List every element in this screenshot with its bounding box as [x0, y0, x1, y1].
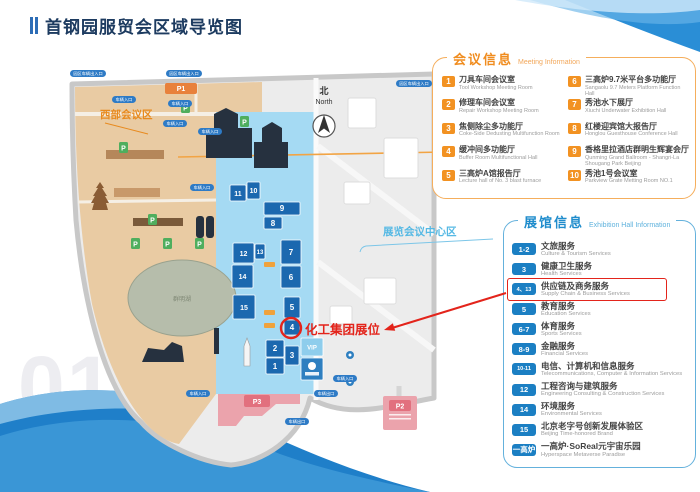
- exhibition-item-name-en: Sports Services: [541, 331, 582, 337]
- meeting-item: 7秀池水下展厅Xiuchi Underwater Exhibition Hall: [568, 98, 689, 121]
- svg-text:4: 4: [290, 323, 295, 332]
- svg-text:15: 15: [240, 305, 248, 312]
- exhibition-item: 12工程咨询与建筑服务Engineering Consulting & Cons…: [510, 380, 691, 399]
- meeting-item-number-badge: 5: [442, 170, 455, 181]
- meeting-item-name-en: Buffer Room Multifunctional Hall: [459, 155, 537, 161]
- building: [133, 218, 183, 226]
- meeting-item: 10秀池1号会议室Parkview Grate Metting Room NO.…: [568, 169, 689, 192]
- exhibition-item-name-zh: 健康卫生服务: [541, 261, 592, 271]
- meeting-item-number-badge: 1: [442, 76, 455, 87]
- exhibition-item-name-zh: 文旅服务: [541, 241, 611, 251]
- svg-text:展览会议中心区: 展览会议中心区: [383, 225, 457, 238]
- meeting-panel-title: 会议信息: [453, 49, 513, 68]
- exhibition-item-name-zh: 供应链及商务服务: [541, 281, 630, 291]
- meeting-item-name-zh: 焦侧除尘多功能厅: [459, 122, 560, 132]
- exhibition-item-number-badge: 1-2: [512, 243, 536, 255]
- svg-text:8: 8: [271, 219, 276, 228]
- exhibition-panel-title: 展馆信息: [524, 212, 584, 231]
- meeting-item: 8红楼迎宾馆大报告厅Honglou Guesthouse Conference …: [568, 122, 689, 145]
- meeting-info-panel: 会议信息 Meeting Information 1刀具车间会议室Tool Wo…: [432, 57, 696, 199]
- bank-building-sign: [305, 372, 319, 376]
- meeting-item-text: 修理车间会议室Repair Workshop Meeting Room: [459, 98, 539, 114]
- meeting-item-text: 香格里拉酒店群明生辉宴会厅Qunming Grand Ballroom - Sh…: [585, 145, 689, 167]
- meeting-item-number-badge: 2: [442, 99, 455, 110]
- meeting-panel-title-row: 会议信息 Meeting Information: [447, 49, 586, 68]
- meeting-item-name-zh: 三高炉9.7米平台多功能厅: [585, 75, 689, 85]
- exhibition-item-text: 教育服务Education Services: [541, 301, 591, 318]
- svg-text:12: 12: [240, 251, 248, 258]
- svg-text:1: 1: [273, 362, 278, 371]
- meeting-item: 4缓冲间多功能厅Buffer Room Multifunctional Hall: [442, 145, 563, 168]
- meeting-item-text: 缓冲间多功能厅Buffer Room Multifunctional Hall: [459, 145, 537, 161]
- svg-text:14: 14: [239, 274, 247, 281]
- exhibition-item-name-en: Hyperspace Metaverse Paradise: [541, 452, 641, 458]
- meeting-item-text: 焦侧除尘多功能厅Coke-Side Dedusting Multifunctio…: [459, 122, 560, 138]
- exhibition-panel-title-row: 展馆信息 Exhibition Hall Information: [518, 212, 676, 231]
- svg-text:VIP: VIP: [307, 346, 317, 352]
- exhibition-item-text: 供应链及商务服务Supply Chain & Business Services: [541, 281, 630, 298]
- svg-text:5: 5: [290, 303, 295, 312]
- exhibition-item-name-zh: 教育服务: [541, 301, 591, 311]
- svg-text:车辆入口: 车辆入口: [167, 120, 184, 127]
- meeting-item-name-en: Coke-Side Dedusting Multifunction Room: [459, 131, 560, 137]
- svg-text:车辆入口: 车辆入口: [190, 390, 207, 397]
- exhibition-item-number-badge: 一高炉: [512, 444, 536, 456]
- cooling-tower-icon: [206, 216, 214, 238]
- exhibition-item-number-badge: 12: [512, 384, 536, 396]
- exhibition-item-text: 电信、计算机和信息服务Telecommunications, Computer …: [541, 361, 682, 378]
- svg-text:车辆入口: 车辆入口: [172, 100, 189, 107]
- meeting-item-name-en: Qunming Grand Ballroom - Shangri-La Shou…: [585, 155, 689, 168]
- meeting-item-name-zh: 秀池1号会议室: [585, 169, 673, 179]
- title-bars-decoration: [30, 17, 38, 34]
- meeting-item-name-en: Sangaolu 9.7 Meters Platform Function Ha…: [585, 85, 689, 98]
- svg-text:6: 6: [289, 273, 294, 282]
- svg-text:9: 9: [280, 204, 285, 213]
- exhibition-item-name-zh: 北京老字号创新发展体验区: [541, 421, 643, 431]
- exhibition-item: 1-2文旅服务Culture & Tourism Services: [510, 240, 691, 259]
- meeting-panel-subtitle: Meeting Information: [518, 59, 580, 66]
- exhibition-item-text: 体育服务Sports Services: [541, 321, 582, 338]
- meeting-item: 9香格里拉酒店群明生辉宴会厅Qunming Grand Ballroom - S…: [568, 145, 689, 168]
- booth-annotation-label: 化工集团展位: [305, 322, 381, 337]
- svg-text:P: P: [121, 146, 126, 153]
- svg-text:车辆入口: 车辆入口: [337, 375, 354, 382]
- exhibition-item-number-badge: 4、13: [512, 283, 536, 295]
- svg-text:园区车辆出入口: 园区车辆出入口: [73, 70, 102, 77]
- exhibition-item-text: 工程咨询与建筑服务Engineering Consulting & Constr…: [541, 381, 664, 398]
- exhibition-item: 10-11电信、计算机和信息服务Telecommunications, Comp…: [510, 360, 691, 379]
- meeting-item-number-badge: 4: [442, 146, 455, 157]
- svg-text:车辆入口: 车辆入口: [202, 128, 219, 135]
- exhibition-item-text: 一高炉·SoReal元宇宙乐园Hyperspace Metaverse Para…: [541, 441, 641, 458]
- meeting-item-text: 红楼迎宾馆大报告厅Honglou Guesthouse Conference H…: [585, 122, 678, 138]
- svg-text:P: P: [165, 242, 170, 249]
- exhibition-item-list: 1-2文旅服务Culture & Tourism Services3健康卫生服务…: [510, 240, 691, 459]
- compass-zh: 北: [319, 85, 328, 96]
- exhibition-item-text: 金融服务Financial Services: [541, 341, 588, 358]
- svg-text:园区车辆出入口: 园区车辆出入口: [399, 80, 428, 87]
- meeting-item-name-zh: 香格里拉酒店群明生辉宴会厅: [585, 145, 689, 155]
- building: [106, 150, 164, 159]
- exhibition-item-name-en: Environmental Services: [541, 411, 602, 417]
- exhibition-item-name-en: Engineering Consulting & Construction Se…: [541, 391, 664, 397]
- cooling-tower-icon: [196, 216, 204, 238]
- meeting-item-name-zh: 秀池水下展厅: [585, 98, 666, 108]
- exhibition-panel-subtitle: Exhibition Hall Information: [589, 222, 670, 229]
- exhibition-item-name-zh: 体育服务: [541, 321, 582, 331]
- svg-text:P1: P1: [177, 86, 186, 93]
- exhibition-item-name-en: Supply Chain & Business Services: [541, 291, 630, 297]
- exhibition-item: 6-7体育服务Sports Services: [510, 320, 691, 339]
- exhibition-item-name-en: Health Services: [541, 271, 592, 277]
- exhibition-item-name-en: Telecommunications, Computer & Informati…: [541, 371, 682, 377]
- exhibition-item-number-badge: 10-11: [512, 363, 536, 375]
- svg-text:13: 13: [257, 250, 264, 256]
- meeting-item-number-badge: 7: [568, 99, 581, 110]
- lake-label: 群明湖: [173, 295, 191, 303]
- meeting-item-number-badge: 8: [568, 123, 581, 134]
- exhibition-info-panel: 展馆信息 Exhibition Hall Information 1-2文旅服务…: [503, 220, 696, 468]
- exhibition-item: 15北京老字号创新发展体验区Beijing Time-honored Brand: [510, 420, 691, 439]
- exhibition-item-number-badge: 6-7: [512, 323, 536, 335]
- exhibition-item: 3健康卫生服务Health Services: [510, 260, 691, 279]
- exhibition-item-name-zh: 环境服务: [541, 401, 602, 411]
- meeting-item-name-en: Xiuchi Underwater Exhibition Hall: [585, 108, 666, 114]
- meeting-item-name-zh: 三高炉A馆报告厅: [459, 169, 541, 179]
- meeting-item-name-en: Lecture hall of No. 3 blast furnace: [459, 178, 541, 184]
- svg-text:10: 10: [250, 188, 258, 195]
- exhibition-item-name-en: Financial Services: [541, 351, 588, 357]
- meeting-item-text: 三高炉9.7米平台多功能厅Sangaolu 9.7 Meters Platfor…: [585, 75, 689, 97]
- meeting-item-name-zh: 修理车间会议室: [459, 98, 539, 108]
- annotation-arrow: [380, 288, 510, 340]
- meeting-item: 3焦侧除尘多功能厅Coke-Side Dedusting Multifuncti…: [442, 122, 563, 145]
- exhibition-item-text: 健康卫生服务Health Services: [541, 261, 592, 278]
- svg-text:P2: P2: [396, 404, 405, 411]
- exhibition-item: 8-9金融服务Financial Services: [510, 340, 691, 359]
- meeting-item-name-en: Parkview Grate Metting Room NO.1: [585, 178, 673, 184]
- meeting-item-text: 三高炉A馆报告厅Lecture hall of No. 3 blast furn…: [459, 169, 541, 185]
- exhibition-item-name-en: Education Services: [541, 311, 591, 317]
- exhibition-item: 5教育服务Education Services: [510, 300, 691, 319]
- svg-text:车辆入口: 车辆入口: [194, 184, 211, 191]
- exhibition-item-highlighted: 4、13供应链及商务服务Supply Chain & Business Serv…: [510, 280, 691, 299]
- exhibition-item-name-zh: 工程咨询与建筑服务: [541, 381, 664, 391]
- exhibition-item-number-badge: 15: [512, 424, 536, 436]
- meeting-item-number-badge: 6: [568, 76, 581, 87]
- svg-text:西部会议区: 西部会议区: [100, 108, 153, 121]
- exhibition-item-number-badge: 5: [512, 303, 536, 315]
- meeting-item-text: 秀池1号会议室Parkview Grate Metting Room NO.1: [585, 169, 673, 185]
- svg-text:车辆出口: 车辆出口: [289, 418, 306, 425]
- meeting-item-list: 1刀具车间会议室Tool Workshop Meeting Room2修理车间会…: [442, 75, 689, 192]
- svg-text:2: 2: [273, 344, 278, 353]
- svg-text:P: P: [150, 218, 155, 225]
- svg-text:7: 7: [289, 248, 294, 257]
- page-title: 首钢园服贸会区域导览图: [45, 13, 243, 38]
- exhibition-item-number-badge: 14: [512, 404, 536, 416]
- svg-text:11: 11: [234, 191, 242, 198]
- svg-text:车辆入口: 车辆入口: [116, 96, 133, 103]
- svg-text:P: P: [197, 242, 202, 249]
- svg-text:P: P: [133, 242, 138, 249]
- meeting-item-number-badge: 3: [442, 123, 455, 134]
- chimney-icon: [214, 328, 219, 354]
- svg-text:园区车辆出入口: 园区车辆出入口: [169, 70, 198, 77]
- exhibition-item-number-badge: 8-9: [512, 343, 536, 355]
- exhibition-item: 14环境服务Environmental Services: [510, 400, 691, 419]
- parking-p1: P1: [165, 83, 197, 94]
- meeting-item-name-zh: 缓冲间多功能厅: [459, 145, 537, 155]
- parking-p2: P2: [383, 396, 417, 430]
- compass-en: North: [315, 99, 332, 106]
- exhibition-item-name-zh: 金融服务: [541, 341, 588, 351]
- page: 01 首钢园服贸会区域导览图: [0, 0, 700, 492]
- svg-text:P3: P3: [253, 399, 262, 406]
- exhibition-item-name-zh: 一高炉·SoReal元宇宙乐园: [541, 441, 641, 451]
- svg-text:车辆出口: 车辆出口: [318, 390, 335, 397]
- meeting-item-name-en: Tool Workshop Meeting Room: [459, 85, 533, 91]
- meeting-item-name-en: Repair Workshop Meeting Room: [459, 108, 539, 114]
- meeting-item-name-zh: 刀具车间会议室: [459, 75, 533, 85]
- exhibition-item: 一高炉一高炉·SoReal元宇宙乐园Hyperspace Metaverse P…: [510, 440, 691, 459]
- meeting-item-text: 秀池水下展厅Xiuchi Underwater Exhibition Hall: [585, 98, 666, 114]
- exhibition-item-text: 北京老字号创新发展体验区Beijing Time-honored Brand: [541, 421, 643, 438]
- meeting-item: 6三高炉9.7米平台多功能厅Sangaolu 9.7 Meters Platfo…: [568, 75, 689, 98]
- svg-text:P: P: [242, 120, 247, 127]
- meeting-item-number-badge: 10: [568, 170, 581, 181]
- meeting-item-name-zh: 红楼迎宾馆大报告厅: [585, 122, 678, 132]
- meeting-item-number-badge: 9: [568, 146, 581, 157]
- exhibition-item-text: 文旅服务Culture & Tourism Services: [541, 241, 611, 258]
- page-title-row: 首钢园服贸会区域导览图: [30, 13, 243, 38]
- exhibition-item-name-en: Beijing Time-honored Brand: [541, 431, 643, 437]
- meeting-item-text: 刀具车间会议室Tool Workshop Meeting Room: [459, 75, 533, 91]
- bank-building-logo: [308, 362, 316, 370]
- exhibition-item-name-zh: 电信、计算机和信息服务: [541, 361, 682, 371]
- exhibition-item-text: 环境服务Environmental Services: [541, 401, 602, 418]
- meeting-item: 2修理车间会议室Repair Workshop Meeting Room: [442, 98, 563, 121]
- arrowhead-icon: [384, 323, 395, 331]
- meeting-item-name-en: Honglou Guesthouse Conference Hall: [585, 131, 678, 137]
- exhibition-item-name-en: Culture & Tourism Services: [541, 251, 611, 257]
- meeting-item: 5三高炉A馆报告厅Lecture hall of No. 3 blast fur…: [442, 169, 563, 192]
- svg-text:3: 3: [290, 351, 295, 360]
- meeting-item: 1刀具车间会议室Tool Workshop Meeting Room: [442, 75, 563, 98]
- building: [114, 188, 160, 197]
- exhibition-item-number-badge: 3: [512, 263, 536, 275]
